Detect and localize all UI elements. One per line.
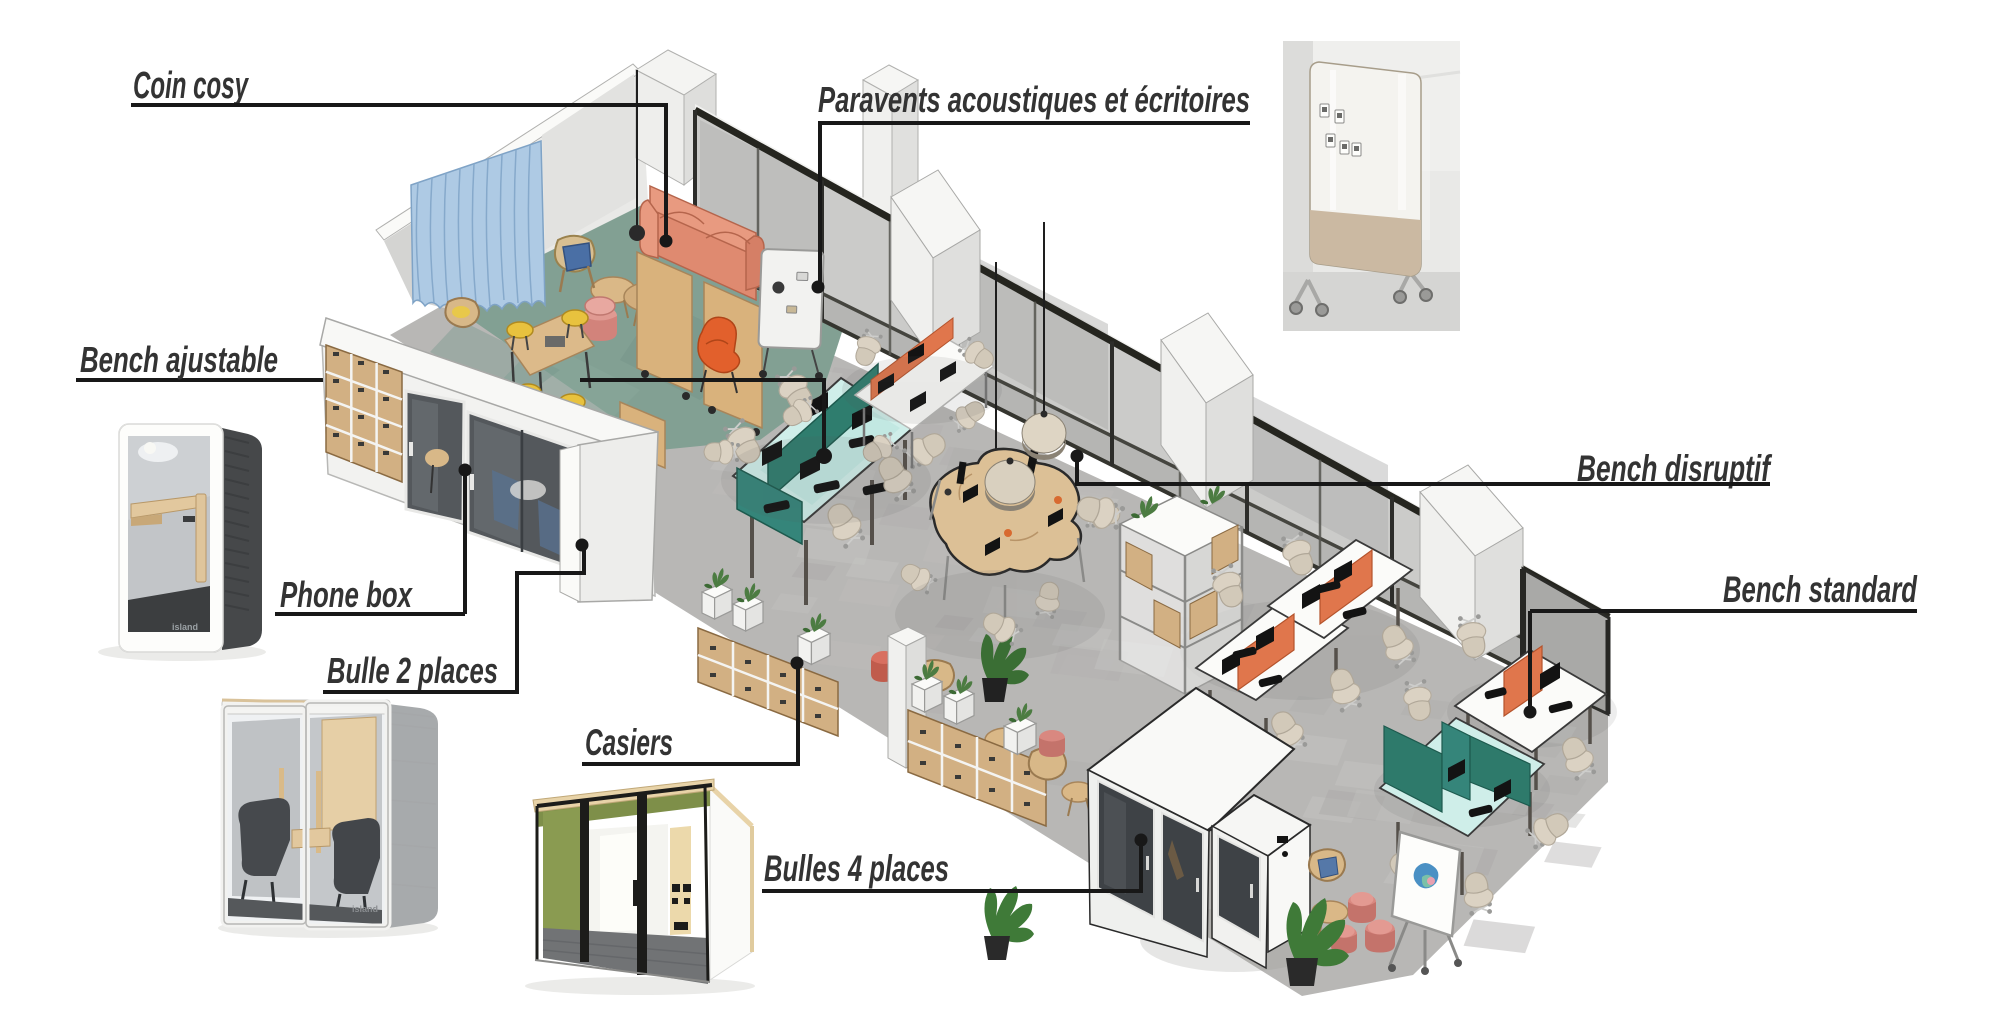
svg-text:Phone box: Phone box <box>280 574 413 615</box>
svg-text:Casiers: Casiers <box>585 722 673 763</box>
svg-text:Bulle 2 places: Bulle 2 places <box>327 650 498 691</box>
svg-text:Bulles 4 places: Bulles 4 places <box>764 848 949 889</box>
svg-text:island: island <box>352 904 378 914</box>
svg-text:Paravents acoustiques et écrit: Paravents acoustiques et écritoires <box>818 79 1250 120</box>
svg-text:Bench standard: Bench standard <box>1723 569 1918 610</box>
svg-text:Coin cosy: Coin cosy <box>133 65 249 107</box>
svg-text:island: island <box>172 622 198 632</box>
svg-text:Bench ajustable: Bench ajustable <box>80 339 278 380</box>
